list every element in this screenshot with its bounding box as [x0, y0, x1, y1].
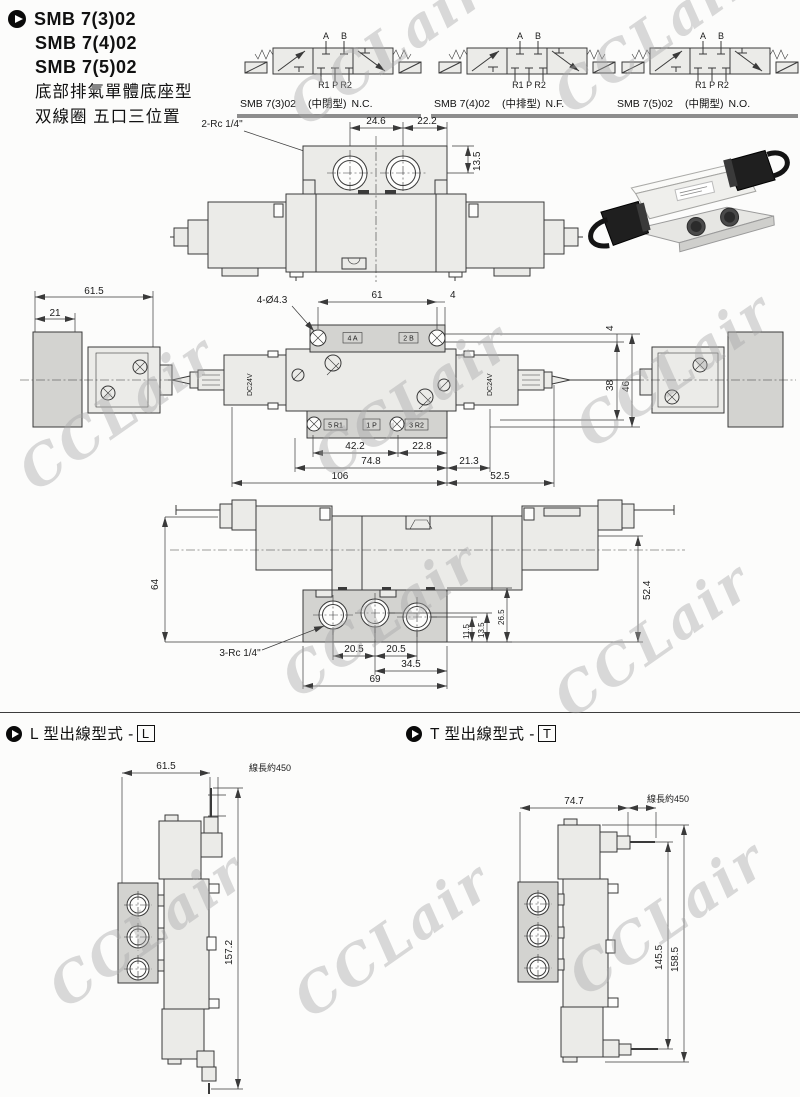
bottom-port-plate: 5 R1 1 P 3 R2: [307, 411, 447, 438]
hole-size-label: 4-Ø4.3: [257, 295, 288, 306]
port-a-label: A: [700, 31, 706, 41]
port-a-label: A: [323, 31, 329, 41]
plate-port-a-label: 4 A: [347, 336, 357, 343]
model-line-2: SMB 7(4)02: [35, 32, 193, 56]
subtitle-2: 双線圈 五口三位置: [35, 105, 193, 130]
symbol-caption: SMB 7(5)02(中開型)N.O.: [614, 96, 800, 111]
dim-74-8: 74.8: [361, 456, 381, 467]
dim-21-3: 21.3: [459, 456, 479, 467]
port-size-label: 2-Rc 1/4": [201, 119, 243, 130]
dim-13-5: 13.5: [472, 151, 483, 171]
l-type-title: L 型出線型式 -: [30, 726, 134, 743]
valve-schematic: A B R1 P R2: [431, 30, 623, 90]
t-type-heading: T 型出線型式 -T: [406, 722, 556, 744]
top-mounting-plate: 4 A 2 B 4-Ø4.3 61 4: [257, 290, 456, 352]
right-side-view: [635, 332, 796, 427]
bottom-base-view-drawing: 64 52.4: [140, 480, 700, 712]
model-name: SMB 7(4)02: [35, 33, 137, 53]
dim-69: 69: [369, 674, 381, 685]
ports-bottom-label: R1 P R2: [318, 80, 352, 90]
dim-158-5: 158.5: [670, 947, 681, 972]
port-5r1-label: 5 R1: [328, 423, 343, 430]
ports-bottom-label: R1 P R2: [512, 80, 546, 90]
symbol-suffix: N.O.: [729, 98, 751, 110]
t-type-title: T 型出線型式 -: [430, 726, 535, 743]
plan-center-assembly: DC24V DC24V: [168, 349, 645, 411]
dim-22-2: 22.2: [417, 116, 437, 127]
datasheet-page: CCLair CCLair CCLair CCLair CCLair CCLai…: [0, 0, 800, 1097]
valve-symbol-nc: A B R1 P R2 SMB 7(3)02(中閉型)N.C.: [237, 30, 429, 118]
port-size-label: 3-Rc 1/4": [219, 648, 261, 659]
plan-view-drawing: 61.5 21 DC24V: [0, 285, 800, 490]
wire-length-label: 線長約450: [647, 793, 689, 804]
dim-13-5: 13.5: [477, 622, 486, 638]
wire-length-label: 線長約450: [249, 762, 291, 773]
dim-157-2: 157.2: [224, 940, 235, 965]
dim-61-5: 61.5: [156, 761, 176, 772]
bullet-icon: [6, 726, 22, 742]
left-side-view: 61.5 21: [20, 286, 218, 427]
dim-61-5: 61.5: [84, 286, 104, 297]
model-name: SMB 7(5)02: [35, 57, 137, 77]
port-b-label: B: [718, 31, 724, 41]
top-port-view-drawing: 24.6 22.2 2-Rc 1/4" 13.5: [170, 106, 610, 288]
coil-voltage-label: DC24V: [487, 373, 494, 396]
port-3r2-label: 3 R2: [409, 423, 424, 430]
dim-11-5: 11.5: [462, 623, 471, 639]
t-valve-body: [518, 819, 658, 1062]
bullet-icon: [8, 10, 26, 28]
valve-assembly-inverted: [170, 500, 685, 590]
caption-underline: [614, 114, 798, 118]
l-type-heading: L 型出線型式 -L: [6, 722, 155, 744]
dim-22-8: 22.8: [412, 441, 432, 452]
dim-46: 46: [621, 380, 632, 392]
dim-145-5: 145.5: [654, 945, 665, 970]
plate-port-b-label: 2 B: [403, 336, 414, 343]
valve-symbol-nf: A B R1 P R2 SMB 7(4)02(中排型)N.F.: [431, 30, 623, 118]
symbol-variant: (中開型): [685, 98, 724, 110]
dim-4-right: 4: [605, 325, 616, 331]
dim-38: 38: [605, 379, 616, 391]
dim-20-5b: 20.5: [386, 644, 406, 655]
dim-21: 21: [49, 308, 61, 319]
port-1p-label: 1 P: [366, 423, 377, 430]
l-type-drawing: 61.5 線長約450 157.2: [58, 753, 343, 1097]
ports-bottom-label: R1 P R2: [695, 80, 729, 90]
dim-4-top: 4: [450, 290, 456, 301]
port-b-label: B: [535, 31, 541, 41]
dim-61: 61: [371, 290, 383, 301]
dim-42-2: 42.2: [345, 441, 365, 452]
section-divider: [0, 712, 800, 713]
port-a-label: A: [517, 31, 523, 41]
subtitle-1: 底部排氣單體底座型: [35, 80, 193, 105]
dim-24-6: 24.6: [366, 116, 386, 127]
dim-20-5a: 20.5: [344, 644, 364, 655]
port-block: [303, 146, 447, 196]
bullet-icon: [406, 726, 422, 742]
t-type-badge: T: [538, 725, 556, 742]
l-type-badge: L: [137, 725, 155, 742]
coil-voltage-label: DC24V: [247, 373, 254, 396]
l-valve-body: [118, 788, 222, 1094]
port-b-label: B: [341, 31, 347, 41]
t-type-drawing: 74.7 線長約450 145.5 158.5: [455, 778, 790, 1096]
page-header: SMB 7(3)02 SMB 7(4)02 SMB 7(5)02 底部排氣單體底…: [8, 8, 193, 130]
model-line-3: SMB 7(5)02: [35, 56, 193, 80]
dim-64: 64: [150, 578, 161, 590]
model-name: SMB 7(3)02: [34, 9, 136, 29]
dim-34-5: 34.5: [401, 659, 421, 670]
dim-74-7: 74.7: [564, 796, 584, 807]
valve-symbol-no: A B R1 P R2 SMB 7(5)02(中開型)N.O.: [614, 30, 800, 118]
model-line-1: SMB 7(3)02: [8, 8, 193, 32]
valve-schematic: A B R1 P R2: [237, 30, 429, 90]
dim-52-4: 52.4: [642, 580, 653, 600]
dim-26-5: 26.5: [497, 609, 506, 625]
valve-schematic: A B R1 P R2: [614, 30, 800, 90]
symbol-model: SMB 7(5)02: [617, 98, 673, 110]
